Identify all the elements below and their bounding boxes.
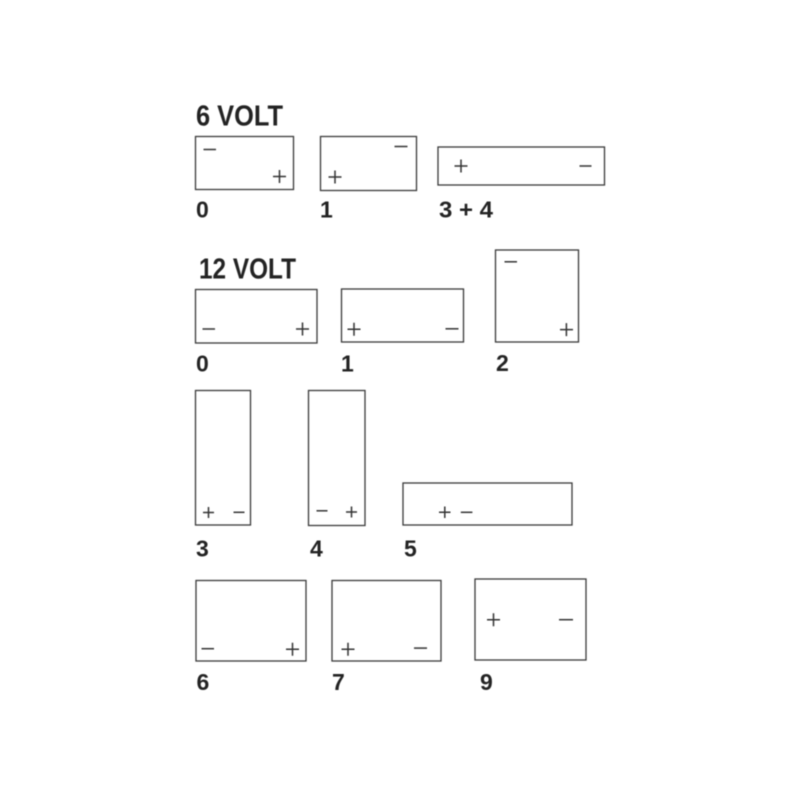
svg-text:5: 5 <box>404 536 417 562</box>
svg-text:9: 9 <box>480 669 493 695</box>
svg-text:1: 1 <box>320 197 333 223</box>
svg-text:0: 0 <box>196 351 209 377</box>
svg-text:3 + 4: 3 + 4 <box>439 197 493 223</box>
svg-text:0: 0 <box>196 197 209 223</box>
svg-text:1: 1 <box>341 351 354 377</box>
svg-text:6 VOLT: 6 VOLT <box>196 101 283 133</box>
svg-text:7: 7 <box>332 669 345 695</box>
svg-text:12 VOLT: 12 VOLT <box>199 254 296 286</box>
svg-text:4: 4 <box>310 536 323 562</box>
svg-text:6: 6 <box>197 669 210 695</box>
svg-text:3: 3 <box>196 536 209 562</box>
svg-text:2: 2 <box>496 350 509 376</box>
